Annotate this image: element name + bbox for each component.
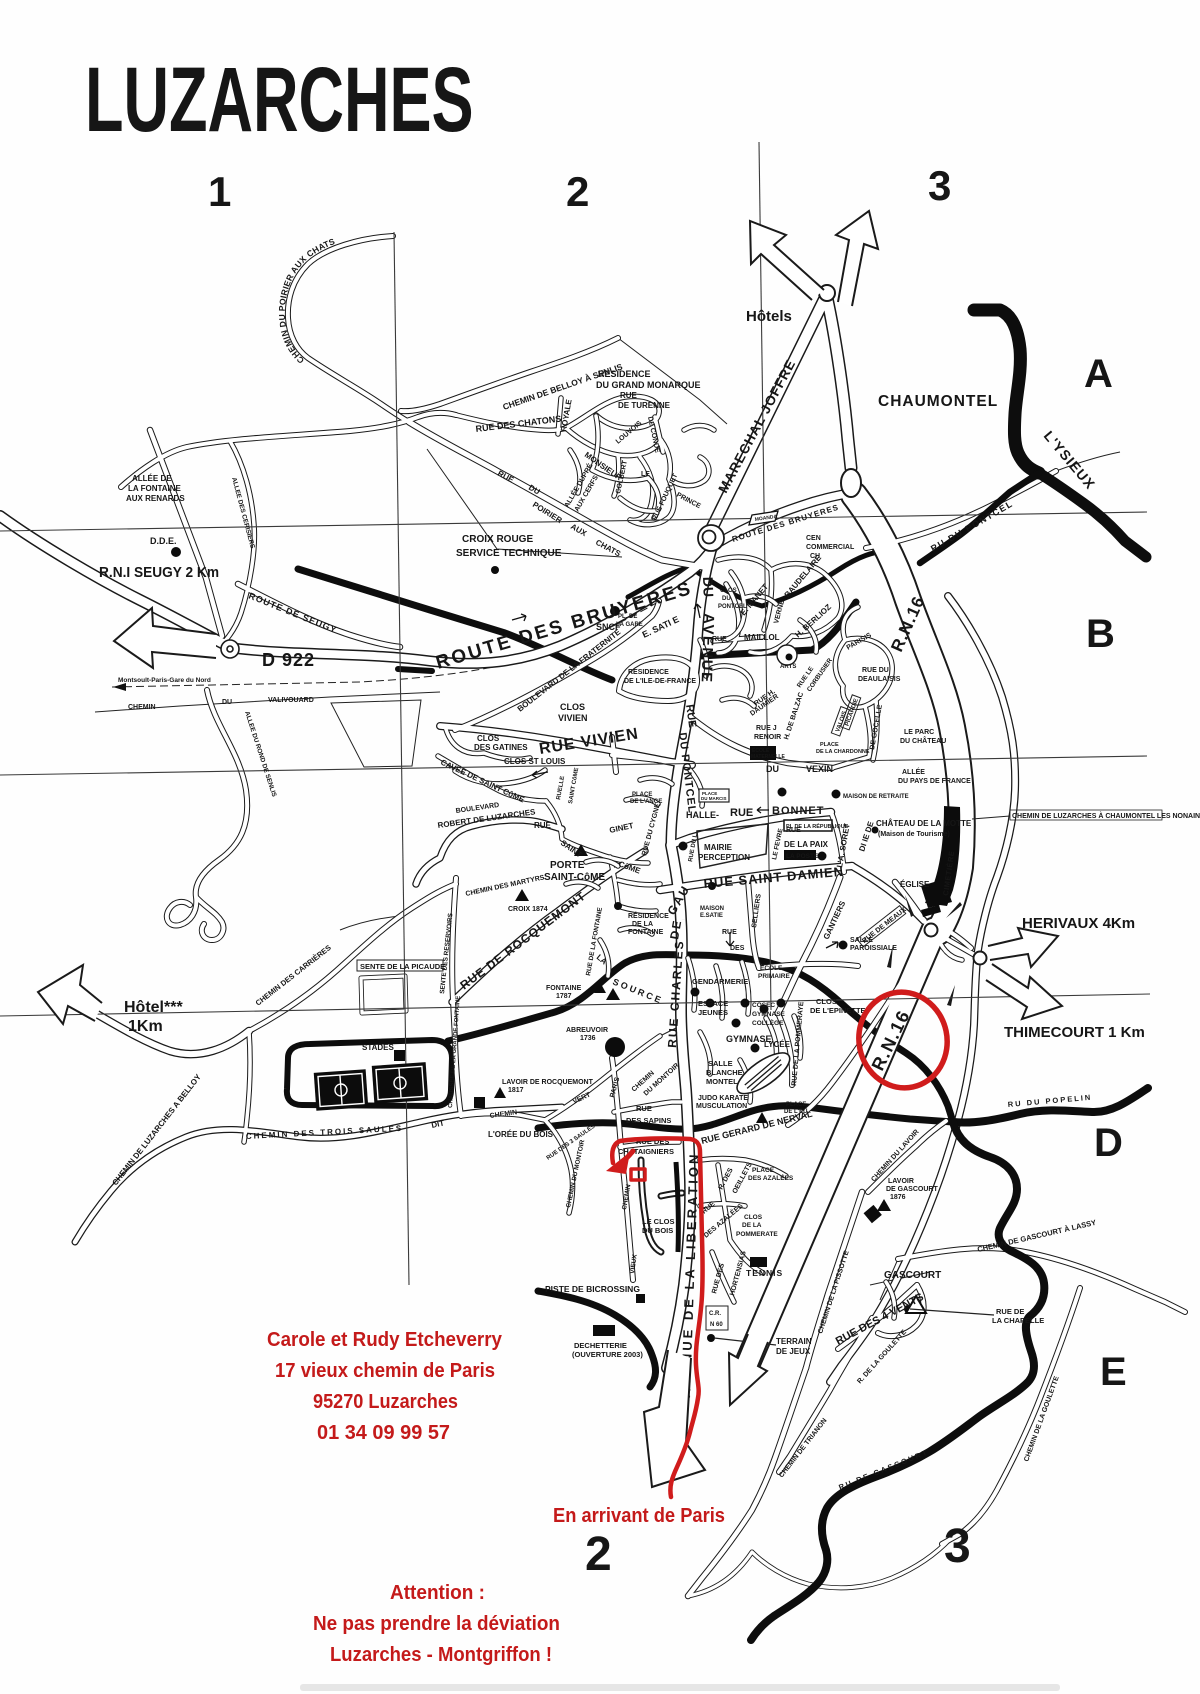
svg-text:N 60: N 60 <box>710 1322 723 1328</box>
svg-text:ESPACE: ESPACE <box>698 999 728 1008</box>
svg-text:VEXIN: VEXIN <box>806 764 833 774</box>
svg-text:AVENUE: AVENUE <box>698 613 717 684</box>
svg-text:SALLE: SALLE <box>850 937 873 944</box>
svg-text:MAISON DE RETRAITE: MAISON DE RETRAITE <box>843 794 909 800</box>
svg-text:THIMECOURT 1 Km: THIMECOURT 1 Km <box>1004 1024 1145 1041</box>
svg-text:(OUVERTURE 2003): (OUVERTURE 2003) <box>572 1350 643 1359</box>
svg-text:1: 1 <box>208 168 231 215</box>
svg-text:ALLÉE: ALLÉE <box>902 767 925 776</box>
svg-text:VALIVOUARD: VALIVOUARD <box>268 697 314 704</box>
svg-text:1817: 1817 <box>508 1087 524 1094</box>
svg-text:AUX RENARDS: AUX RENARDS <box>126 494 185 503</box>
svg-text:JEUNES: JEUNES <box>698 1008 728 1017</box>
svg-text:L'ORÉE DU BOIS: L'ORÉE DU BOIS <box>488 1130 554 1139</box>
svg-text:SAINT-CôME: SAINT-CôME <box>544 872 605 883</box>
svg-text:Montsoult-Paris-Gare du Nord: Montsoult-Paris-Gare du Nord <box>118 677 211 684</box>
svg-text:DU: DU <box>722 596 731 602</box>
svg-text:DECHETTERIE: DECHETTERIE <box>574 1341 627 1350</box>
svg-text:Hôtel***: Hôtel*** <box>124 999 183 1016</box>
svg-text:DE L'ANGE: DE L'ANGE <box>630 799 662 805</box>
svg-text:PLACE: PLACE <box>752 1167 775 1174</box>
svg-text:LA POSTE: LA POSTE <box>786 853 819 860</box>
svg-text:LAVOIR DE ROCQUEMONT: LAVOIR DE ROCQUEMONT <box>502 1079 594 1086</box>
svg-text:JUDO KARATE: JUDO KARATE <box>698 1095 748 1102</box>
svg-text:CLOS: CLOS <box>720 588 737 594</box>
svg-text:CLOS: CLOS <box>477 734 500 743</box>
svg-text:CROIX ROUGE: CROIX ROUGE <box>462 534 533 545</box>
svg-text:GENDARMERIE: GENDARMERIE <box>692 977 748 986</box>
svg-text:Ne pas prendre la déviation: Ne pas prendre la déviation <box>313 1613 560 1635</box>
svg-text:LA GARE: LA GARE <box>616 622 643 628</box>
svg-text:CHEMIN DE LUZARCHES À CHAUMONT: CHEMIN DE LUZARCHES À CHAUMONTEL LES NON… <box>1012 811 1200 820</box>
svg-text:DE LA: DE LA <box>742 1222 762 1229</box>
svg-text:C.R.: C.R. <box>709 1311 721 1317</box>
svg-text:PLACE: PLACE <box>632 792 652 798</box>
svg-text:LE: LE <box>641 471 650 478</box>
svg-text:PERCEPTION: PERCEPTION <box>698 853 750 862</box>
svg-text:3: 3 <box>944 1520 971 1573</box>
svg-text:RESIDENCE: RESIDENCE <box>598 369 651 379</box>
svg-text:DU: DU <box>700 577 717 598</box>
svg-text:TENNIS: TENNIS <box>746 1268 783 1278</box>
svg-text:D: D <box>1094 1121 1123 1165</box>
svg-text:1736: 1736 <box>580 1035 596 1042</box>
svg-text:Carole et Rudy Etcheverry: Carole et Rudy Etcheverry <box>267 1329 503 1351</box>
svg-text:POMMERATE: POMMERATE <box>736 1231 778 1238</box>
svg-text:DE TURENNE: DE TURENNE <box>618 401 671 410</box>
svg-text:DES AZALÉES: DES AZALÉES <box>748 1173 794 1182</box>
svg-text:RÉSIDENCE: RÉSIDENCE <box>628 911 669 920</box>
svg-text:HALLE-: HALLE- <box>686 810 719 820</box>
svg-text:FONTAINE: FONTAINE <box>546 985 582 992</box>
svg-text:COMMERCIAL: COMMERCIAL <box>806 544 855 551</box>
svg-text:PISTE DE BICROSSING: PISTE DE BICROSSING <box>545 1284 640 1294</box>
svg-text:RUE: RUE <box>786 827 801 834</box>
svg-text:1787: 1787 <box>556 993 572 1000</box>
svg-text:TERRAIN: TERRAIN <box>776 1337 812 1346</box>
svg-text:R.N.I SEUGY 2 Km: R.N.I SEUGY 2 Km <box>99 564 219 581</box>
svg-text:SERVICE TECHNIQUE: SERVICE TECHNIQUE <box>456 548 562 559</box>
svg-text:CHAUMONTEL: CHAUMONTEL <box>878 393 998 410</box>
svg-text:RUE: RUE <box>620 391 638 400</box>
svg-text:ABREUVOIR: ABREUVOIR <box>566 1027 608 1034</box>
svg-text:95270 Luzarches: 95270 Luzarches <box>313 1391 458 1413</box>
svg-text:VIVIEN: VIVIEN <box>558 713 588 723</box>
svg-text:En arrivant de Paris: En arrivant de Paris <box>553 1505 725 1527</box>
svg-text:ÉCOLE: ÉCOLE <box>760 963 783 972</box>
svg-text:DE LA: DE LA <box>632 921 653 928</box>
svg-text:A: A <box>1084 352 1113 396</box>
svg-text:Hôtels: Hôtels <box>746 308 792 325</box>
svg-text:COLLÈGE: COLLÈGE <box>752 1018 784 1027</box>
svg-text:GYMNASE: GYMNASE <box>752 1011 786 1018</box>
svg-text:FONTAINE: FONTAINE <box>628 929 664 936</box>
svg-text:D.D.E.: D.D.E. <box>150 536 177 546</box>
svg-text:01 34 09 99 57: 01 34 09 99 57 <box>317 1422 450 1444</box>
svg-text:DES SAPINS: DES SAPINS <box>626 1116 671 1125</box>
svg-text:CHEMIN: CHEMIN <box>128 704 156 711</box>
svg-text:RENOIR: RENOIR <box>754 734 781 741</box>
svg-text:2: 2 <box>566 168 589 215</box>
svg-text:DE JEUX: DE JEUX <box>776 1347 811 1356</box>
svg-text:CLOS: CLOS <box>744 1214 763 1221</box>
svg-text:DES: DES <box>730 945 745 952</box>
svg-text:DE L'EPINETTE: DE L'EPINETTE <box>810 1006 866 1015</box>
svg-text:MAISON: MAISON <box>700 906 724 912</box>
svg-text:17 vieux chemin de Paris: 17 vieux chemin de Paris <box>275 1360 495 1382</box>
svg-text:1876: 1876 <box>890 1194 906 1201</box>
svg-text:SENTE DE LA PICAUDE: SENTE DE LA PICAUDE <box>360 962 445 971</box>
svg-text:ÉGLISE: ÉGLISE <box>900 880 930 889</box>
svg-text:Luzarches - Montgriffon !: Luzarches - Montgriffon ! <box>330 1644 552 1666</box>
svg-text:RUE J: RUE J <box>756 725 777 732</box>
svg-text:LAVOIR: LAVOIR <box>888 1178 914 1185</box>
svg-text:LE CLOS: LE CLOS <box>642 1217 675 1226</box>
svg-text:RUE DE: RUE DE <box>996 1307 1024 1316</box>
svg-text:MONTEL: MONTEL <box>706 1077 738 1086</box>
svg-text:1Km: 1Km <box>128 1018 163 1035</box>
svg-text:DU CHÂTEAU: DU CHÂTEAU <box>900 736 946 745</box>
svg-text:RESIDENCE: RESIDENCE <box>628 669 669 676</box>
svg-text:PAROISSIALE: PAROISSIALE <box>850 945 897 952</box>
svg-text:BONNET: BONNET <box>772 805 824 817</box>
svg-text:SALLE: SALLE <box>708 1059 733 1068</box>
svg-text:PORTE: PORTE <box>550 860 585 871</box>
svg-text:DE GASCOURT: DE GASCOURT <box>886 1186 938 1193</box>
svg-text:PLACE: PLACE <box>786 1102 806 1108</box>
svg-text:D 922: D 922 <box>262 650 315 670</box>
svg-text:E: E <box>1100 1350 1127 1394</box>
svg-text:DE LA PAIX: DE LA PAIX <box>784 840 829 849</box>
svg-text:MATERNELLE: MATERNELLE <box>751 754 785 760</box>
svg-text:LYCÉE: LYCÉE <box>764 1040 791 1049</box>
svg-text:MAIRIE: MAIRIE <box>704 843 733 852</box>
svg-text:RUE: RUE <box>534 821 552 830</box>
svg-text:CROIX 1874: CROIX 1874 <box>508 906 548 913</box>
svg-text:DU GRAND MONARQUE: DU GRAND MONARQUE <box>596 380 701 390</box>
svg-text:CEN: CEN <box>806 535 821 542</box>
svg-text:DU BOIS: DU BOIS <box>642 1226 673 1235</box>
svg-text:BLANCHE: BLANCHE <box>706 1068 743 1077</box>
svg-text:3: 3 <box>928 162 951 209</box>
svg-text:DE LA CHARDONNE: DE LA CHARDONNE <box>816 749 870 755</box>
svg-text:RUE: RUE <box>636 1104 652 1113</box>
svg-text:HERIVAUX 4Km: HERIVAUX 4Km <box>1022 915 1135 932</box>
svg-text:Attention :: Attention : <box>390 1582 485 1604</box>
svg-text:CHATAIGNIERS: CHATAIGNIERS <box>618 1147 674 1156</box>
svg-text:DU: DU <box>766 764 779 774</box>
svg-text:STADES: STADES <box>362 1043 395 1052</box>
svg-text:RUE: RUE <box>730 807 753 819</box>
svg-text:GASCOURT: GASCOURT <box>884 1270 941 1281</box>
svg-text:E.SATIE: E.SATIE <box>700 913 723 919</box>
svg-text:ALLÉE DE: ALLÉE DE <box>132 474 172 483</box>
svg-text:ÉCOLE: ÉCOLE <box>752 746 770 754</box>
svg-text:DU PAYS DE FRANCE: DU PAYS DE FRANCE <box>898 778 971 785</box>
svg-text:DE L'ILE-DE-FRANCE: DE L'ILE-DE-FRANCE <box>624 678 696 685</box>
svg-text:DEAULAISIS: DEAULAISIS <box>858 676 901 683</box>
svg-text:CLOS ST LOUIS: CLOS ST LOUIS <box>504 757 566 766</box>
svg-text:MUSCULATION: MUSCULATION <box>696 1103 747 1110</box>
svg-text:LA FONTAINE: LA FONTAINE <box>128 484 182 493</box>
svg-text:2: 2 <box>585 1528 612 1581</box>
svg-text:CLOS: CLOS <box>816 997 837 1006</box>
svg-text:DES GATINES: DES GATINES <box>474 743 528 752</box>
svg-text:COSEC: COSEC <box>752 1002 775 1009</box>
svg-text:PLACE: PLACE <box>820 742 839 748</box>
svg-text:LE PARC: LE PARC <box>904 729 934 736</box>
svg-text:MAILLOL: MAILLOL <box>744 633 780 642</box>
svg-text:LA CHAPELLE: LA CHAPELLE <box>992 1316 1044 1325</box>
svg-text:DU: DU <box>222 699 232 706</box>
svg-text:CHÂTEAU DE LA MOTTE: CHÂTEAU DE LA MOTTE <box>876 819 972 828</box>
svg-text:PL. DE: PL. DE <box>618 614 637 620</box>
svg-text:(Maison de Tourisme): (Maison de Tourisme) <box>878 831 950 838</box>
svg-text:CLOS: CLOS <box>560 702 585 712</box>
svg-text:RUE DU: RUE DU <box>862 667 889 674</box>
svg-text:DU MARCIS: DU MARCIS <box>701 796 727 801</box>
svg-text:PRIMAIRE: PRIMAIRE <box>758 973 790 980</box>
svg-text:LUZARCHES: LUZARCHES <box>85 48 474 151</box>
svg-text:B: B <box>1086 612 1115 656</box>
